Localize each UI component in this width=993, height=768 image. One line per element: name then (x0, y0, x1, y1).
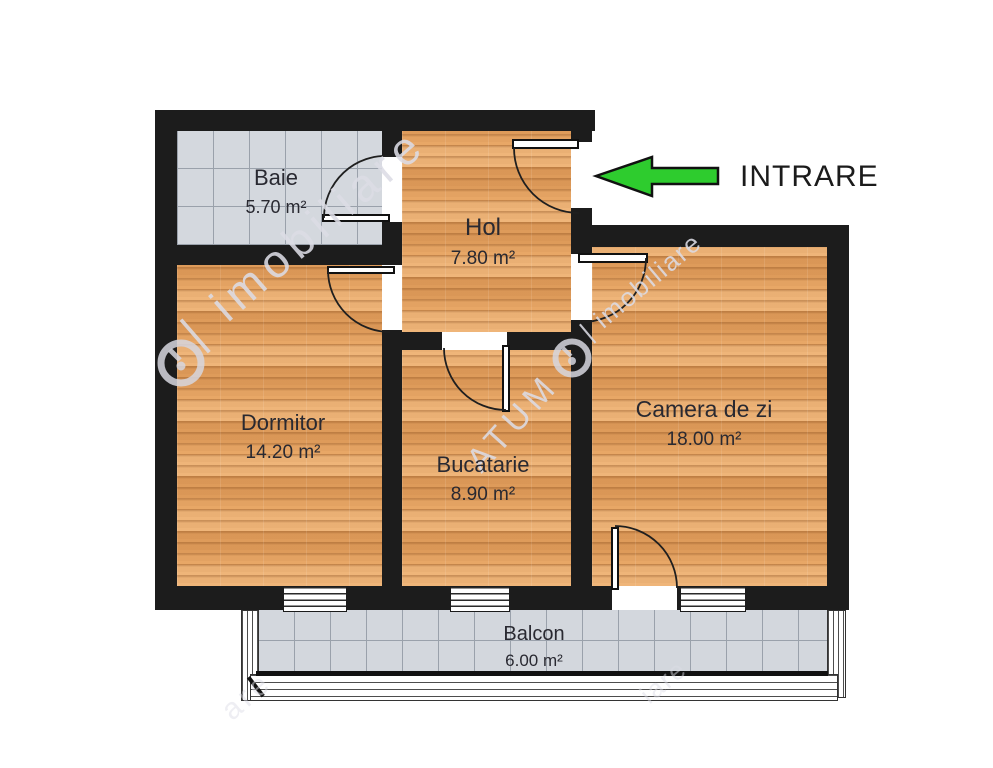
baie-area: 5.70 m² (245, 198, 306, 216)
hol-label: Hol 7.80 m² (451, 216, 515, 268)
balcony-door-opening (612, 586, 677, 610)
hol-area: 7.80 m² (451, 249, 515, 268)
camera-door-panel (578, 253, 648, 263)
wall-top (155, 110, 595, 131)
entrance-label: INTRARE (740, 162, 879, 192)
balcon-area: 6.00 m² (503, 652, 564, 669)
baie-name: Baie (245, 167, 306, 189)
bucatarie-name: Bucatarie (437, 454, 530, 476)
hol-name: Hol (451, 216, 515, 240)
dormitor-door-panel (327, 266, 395, 274)
balcon-name: Balcon (503, 624, 564, 644)
balcony-railing-front (250, 674, 838, 701)
camera-de-zi-area: 18.00 m² (636, 430, 773, 449)
dormitor-label: Dormitor 14.20 m² (241, 412, 325, 462)
baie-door-opening (382, 157, 402, 222)
bucatarie-door-panel (502, 345, 510, 412)
camera-de-zi-label: Camera de zi 18.00 m² (636, 398, 773, 449)
bucatarie-area: 8.90 m² (437, 485, 530, 504)
wall-top-camera (571, 225, 849, 247)
bucatarie-window (450, 586, 510, 612)
balcony-edge-line (256, 671, 828, 676)
dormitor-door-opening (382, 265, 402, 330)
camera-de-zi-name: Camera de zi (636, 398, 773, 421)
entrance-door-opening (571, 142, 592, 208)
balcony-door-panel (611, 527, 619, 590)
dormitor-name: Dormitor (241, 412, 325, 434)
dormitor-area: 14.20 m² (241, 443, 325, 462)
baie-label: Baie 5.70 m² (245, 167, 306, 216)
baie-door-panel (322, 214, 390, 222)
camera-window (680, 586, 746, 612)
wall-baie-dormitor (155, 245, 402, 265)
dormitor-window (283, 586, 347, 612)
bucatarie-label: Bucatarie 8.90 m² (437, 454, 530, 504)
bucatarie-door-opening (442, 332, 507, 350)
floor-plan: | imobiliare | imobiliare ATUM are iare … (0, 0, 993, 768)
entrance-door-panel (512, 139, 579, 149)
balcon-label: Balcon 6.00 m² (503, 624, 564, 669)
entrance-arrow-icon (596, 157, 718, 196)
camera-door-opening (571, 254, 592, 320)
wall-right (827, 225, 849, 610)
wall-left (155, 110, 177, 610)
